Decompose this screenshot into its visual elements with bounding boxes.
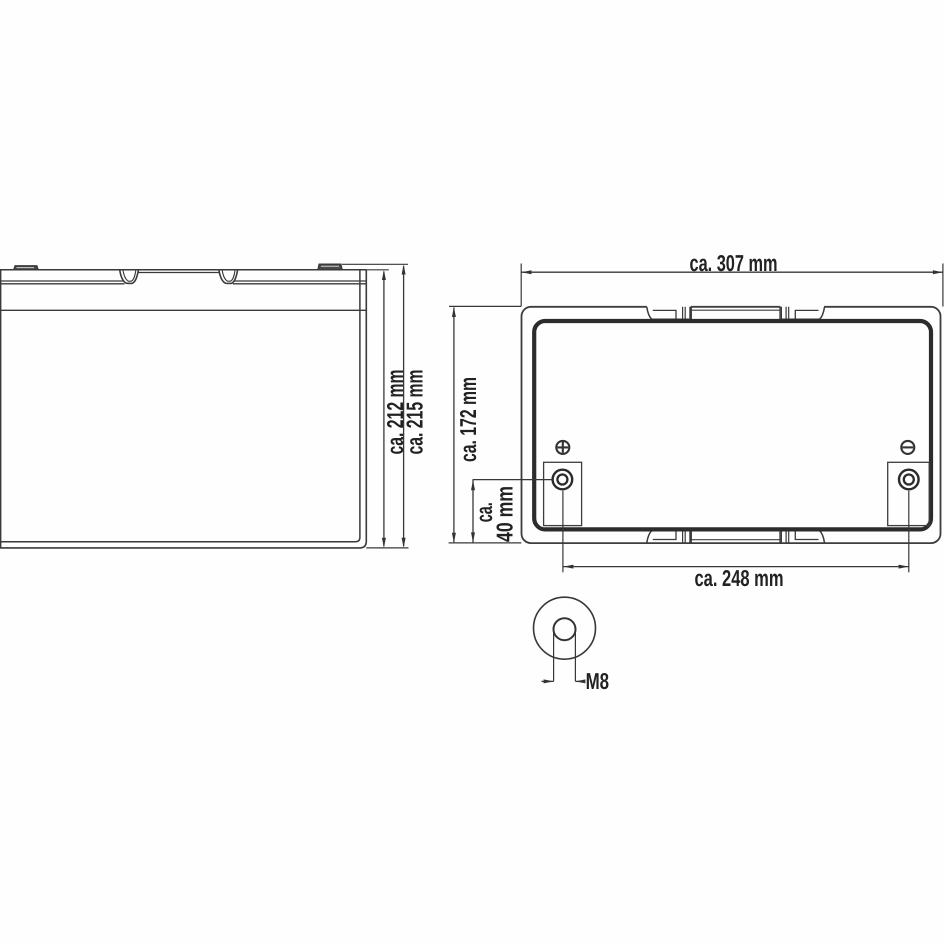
svg-text:ca. 215 mm: ca. 215 mm <box>401 370 427 455</box>
svg-text:M8: M8 <box>586 668 610 694</box>
svg-text:ca. 307 mm: ca. 307 mm <box>690 250 778 276</box>
svg-text:40 mm: 40 mm <box>492 486 518 542</box>
svg-text:ca. 248 mm: ca. 248 mm <box>695 565 784 591</box>
svg-text:ca. 172 mm: ca. 172 mm <box>455 377 481 462</box>
